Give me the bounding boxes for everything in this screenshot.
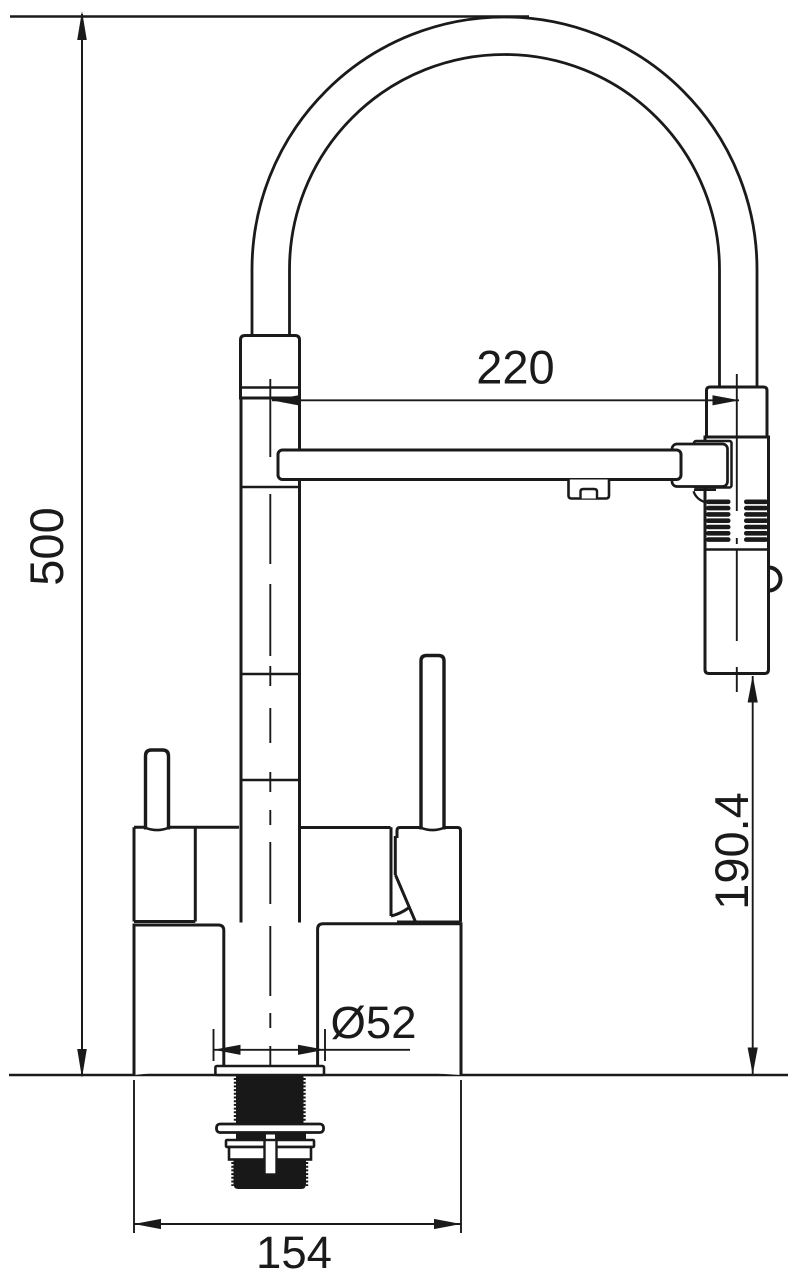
svg-text:220: 220 <box>476 341 554 394</box>
svg-text:500: 500 <box>20 507 73 585</box>
svg-text:Ø52: Ø52 <box>331 997 417 1048</box>
svg-text:190.4: 190.4 <box>705 792 758 910</box>
svg-text:154: 154 <box>256 1227 332 1278</box>
